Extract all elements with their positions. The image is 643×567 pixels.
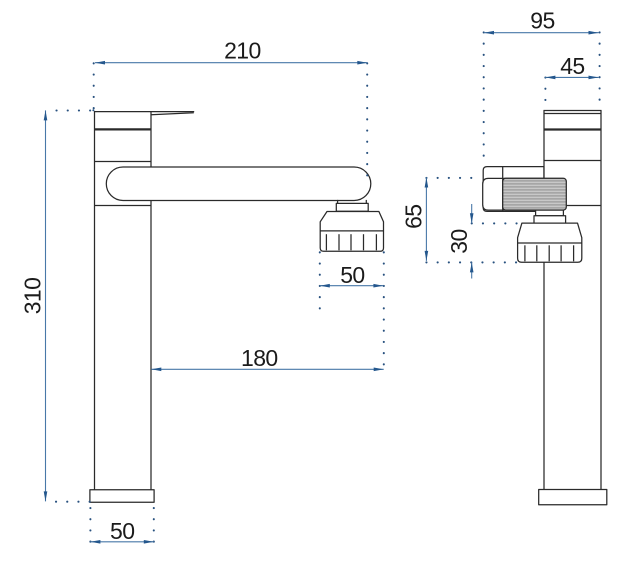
svg-text:95: 95 — [530, 7, 554, 33]
svg-text:50: 50 — [340, 262, 364, 288]
svg-text:45: 45 — [560, 53, 584, 79]
svg-text:180: 180 — [241, 345, 278, 371]
svg-text:50: 50 — [110, 518, 134, 544]
svg-text:210: 210 — [224, 38, 261, 64]
svg-text:30: 30 — [446, 229, 472, 253]
svg-text:310: 310 — [20, 278, 46, 315]
svg-text:65: 65 — [401, 205, 427, 229]
